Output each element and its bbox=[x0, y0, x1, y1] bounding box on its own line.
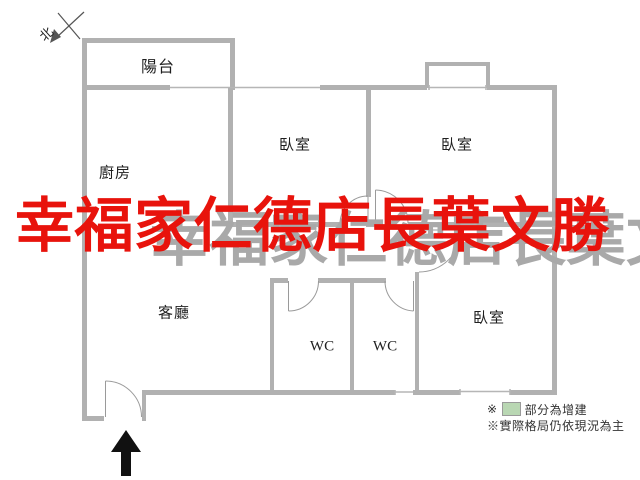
wall-bottom-left bbox=[82, 416, 104, 421]
wall-bedroom3-west bbox=[415, 272, 419, 392]
legend-line1-prefix: ※ bbox=[487, 402, 498, 417]
room-label-bedroom-bottom: 臥室 bbox=[473, 307, 505, 328]
room-label-kitchen: 廚房 bbox=[99, 162, 131, 183]
room-label-living: 客廳 bbox=[158, 302, 190, 323]
compass-icon bbox=[50, 12, 84, 43]
compass-north-label: 北 bbox=[34, 21, 57, 44]
legend-line2-text: ※實際格局仍依現況為主 bbox=[487, 417, 625, 434]
entrance-arrow-icon bbox=[111, 430, 141, 476]
legend-addition-swatch bbox=[502, 402, 521, 416]
wall-wc-divider bbox=[350, 280, 354, 392]
wall-bottom-a bbox=[142, 390, 395, 395]
wall-bay-right bbox=[486, 62, 490, 88]
legend: ※ 部分為增建 ※實際格局仍依現況為主 bbox=[487, 401, 625, 433]
wall-bottom-c bbox=[510, 390, 557, 395]
wall-balcony-bottom bbox=[82, 85, 170, 90]
wall-top-a bbox=[320, 85, 427, 90]
legend-line1: ※ 部分為增建 bbox=[487, 401, 625, 417]
entrance-door bbox=[106, 381, 142, 417]
room-label-wc-right: WC bbox=[373, 339, 397, 356]
wall-midbedroom-right bbox=[366, 88, 371, 197]
floorplan-page: { "compass": { "north_label": "北" }, "ro… bbox=[0, 0, 640, 480]
wall-bottom-b bbox=[413, 390, 460, 395]
wall-entry-jamb bbox=[142, 390, 146, 421]
wall-balcony-top bbox=[82, 38, 235, 43]
watermark-text: 幸福家仁德店長葉文勝 bbox=[15, 197, 610, 256]
room-label-bedroom-mid: 臥室 bbox=[279, 134, 311, 155]
room-label-balcony: 陽台 bbox=[141, 53, 175, 77]
legend-line1-text: 部分為增建 bbox=[525, 401, 588, 418]
wall-top-b bbox=[487, 85, 557, 90]
room-label-bedroom-right: 臥室 bbox=[441, 134, 473, 155]
wall-bay-top bbox=[425, 62, 490, 66]
legend-line2: ※實際格局仍依現況為主 bbox=[487, 417, 625, 433]
wc-left-door bbox=[289, 281, 319, 311]
wc-right-door bbox=[385, 281, 414, 311]
floor-plan: 北 陽台 廚房 臥室 臥室 臥室 客廳 WC WC ※ 部分為增建 ※實際格局仍… bbox=[0, 0, 640, 480]
wall-wc-left bbox=[270, 278, 274, 395]
room-label-wc-left: WC bbox=[310, 339, 334, 356]
wall-balcony-right bbox=[230, 38, 235, 90]
